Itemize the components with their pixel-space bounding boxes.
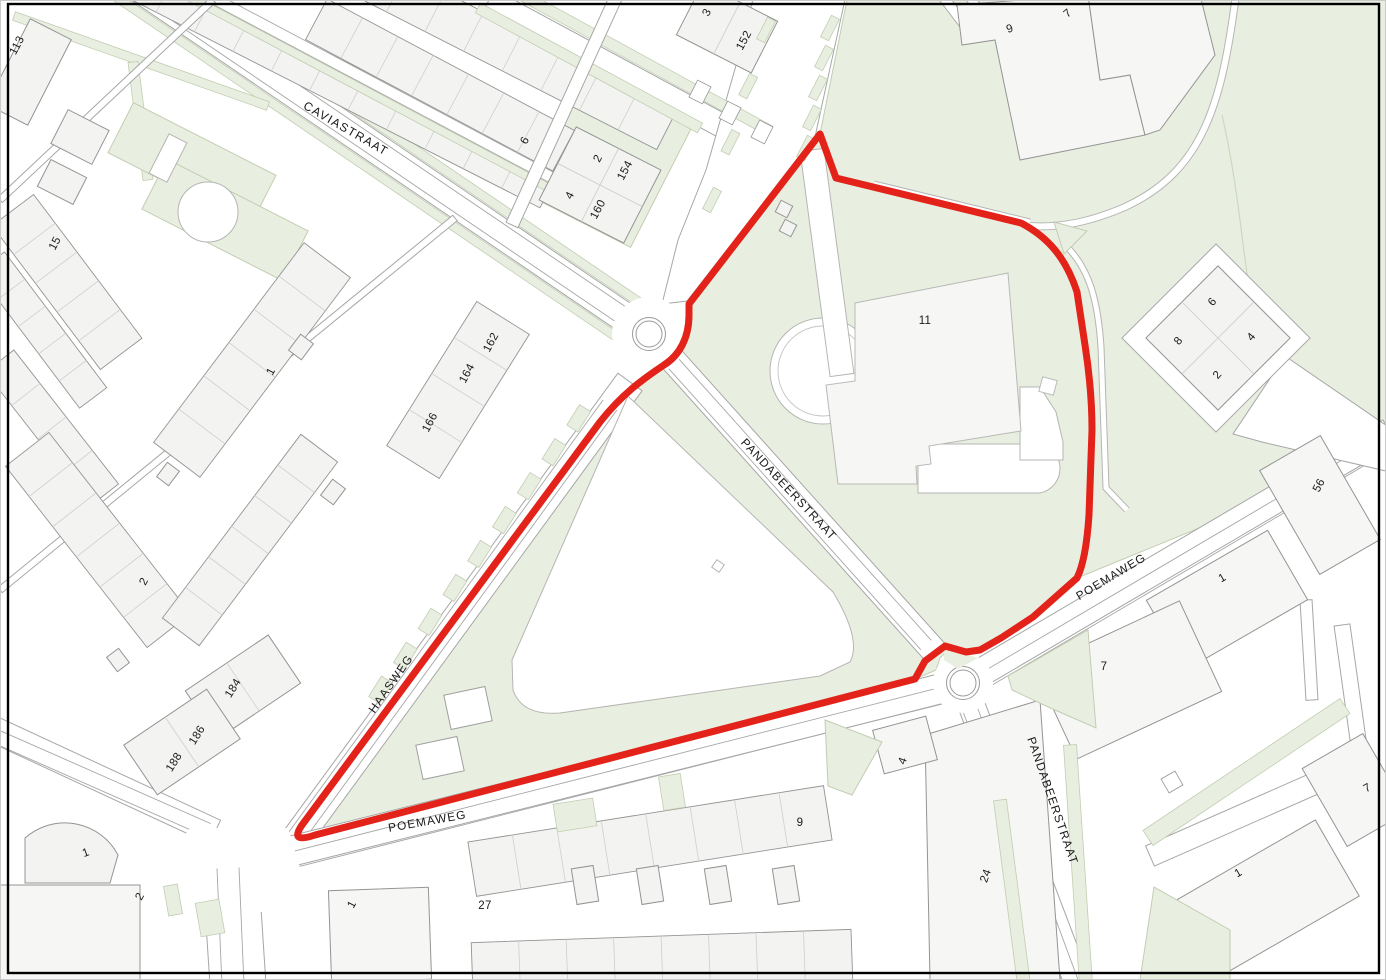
- svg-text:27: 27: [478, 900, 491, 912]
- svg-text:7: 7: [1101, 661, 1108, 673]
- svg-text:11: 11: [919, 315, 932, 327]
- svg-text:9: 9: [797, 817, 804, 829]
